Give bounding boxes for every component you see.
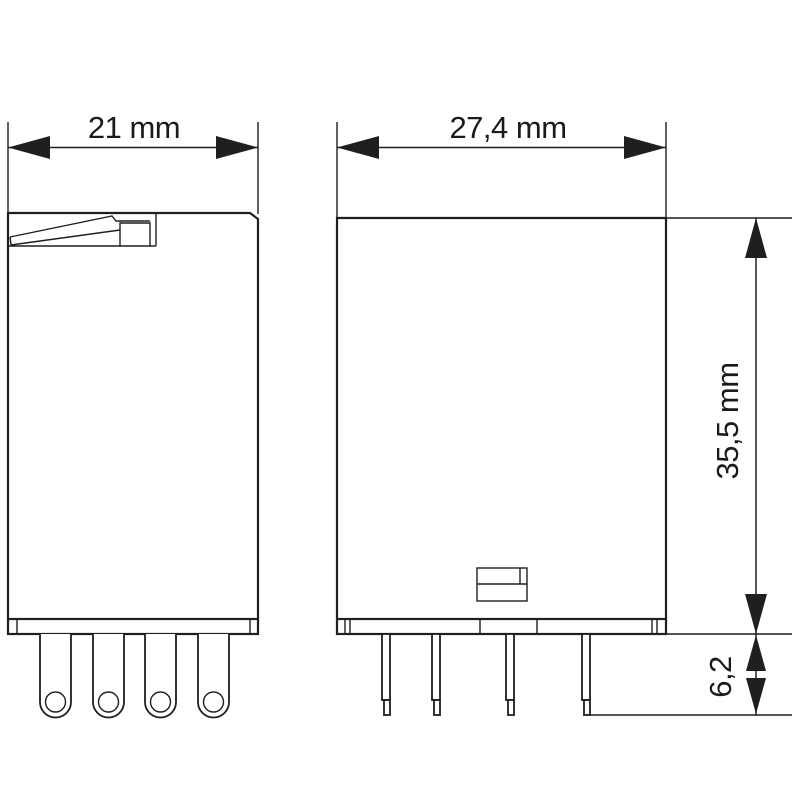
- arrow-down-icon: [746, 678, 766, 714]
- front-pin: [198, 634, 229, 718]
- side-pin-shank: [582, 634, 590, 700]
- dim-body-height-label: 35,5 mm: [710, 362, 745, 479]
- front-base-plate: [8, 619, 258, 634]
- front-test-lever-detail: [8, 213, 156, 246]
- side-view: [337, 218, 666, 715]
- arrow-left-icon: [8, 136, 50, 159]
- side-latch-window: [477, 568, 527, 601]
- latch-window-detail: [477, 568, 527, 584]
- front-pin: [93, 634, 124, 718]
- side-pin-shank: [432, 634, 440, 700]
- drawing-root: 21 mm 27,4 mm 35,5 mm: [8, 110, 792, 718]
- relay-dimension-drawing: 21 mm 27,4 mm 35,5 mm: [0, 0, 800, 800]
- arrow-right-icon: [624, 136, 666, 159]
- dim-body-height: 35,5 mm: [666, 218, 792, 634]
- arrow-down-icon: [745, 594, 767, 634]
- dim-side-width: 27,4 mm: [337, 110, 666, 219]
- front-body-outline: [8, 213, 258, 619]
- arrow-up-icon: [746, 635, 766, 671]
- arrow-left-icon: [337, 136, 379, 159]
- side-pin-tip: [508, 700, 514, 715]
- dim-side-width-label: 27,4 mm: [449, 110, 566, 145]
- dimensions: 21 mm 27,4 mm 35,5 mm: [8, 110, 792, 715]
- side-base-ticks: [345, 619, 657, 634]
- side-pins: [382, 634, 590, 715]
- side-pin-shank: [382, 634, 390, 700]
- side-pin-tip: [434, 700, 440, 715]
- side-pin-shank: [506, 634, 514, 700]
- front-base-ticks: [17, 619, 250, 634]
- dim-pin-length: 6,2: [590, 634, 792, 715]
- dim-front-width-label: 21 mm: [88, 110, 180, 145]
- front-pin: [145, 634, 176, 718]
- arrow-up-icon: [745, 218, 767, 258]
- side-body-outline: [337, 218, 666, 619]
- side-pin-tip: [384, 700, 390, 715]
- arrow-right-icon: [216, 136, 258, 159]
- dim-front-width: 21 mm: [8, 110, 258, 214]
- side-pin-tip: [584, 700, 590, 715]
- dim-pin-length-label: 6,2: [703, 656, 738, 698]
- front-pins: [40, 634, 229, 718]
- front-pin: [40, 634, 71, 718]
- side-base-plate: [337, 619, 666, 634]
- front-view: [8, 213, 258, 718]
